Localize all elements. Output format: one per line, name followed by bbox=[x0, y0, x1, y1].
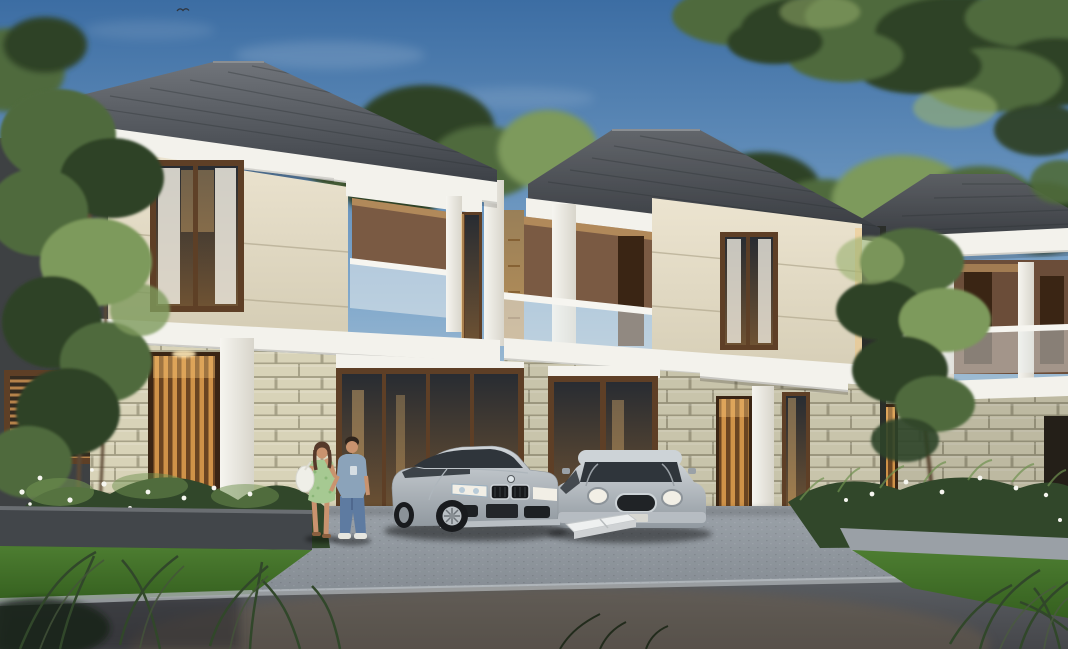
shrub-highlight bbox=[112, 473, 188, 499]
shirt-graphic bbox=[350, 466, 357, 475]
sandal bbox=[312, 532, 321, 536]
side-window-glow bbox=[788, 398, 796, 512]
foliage-highlight bbox=[836, 236, 904, 284]
side-mirror bbox=[688, 468, 696, 474]
foliage-cluster bbox=[871, 418, 939, 462]
head bbox=[317, 448, 328, 459]
side-mirror bbox=[562, 468, 570, 474]
headlight bbox=[533, 487, 557, 501]
headlight bbox=[662, 490, 682, 506]
shoe bbox=[338, 533, 351, 539]
cloud bbox=[85, 20, 215, 40]
headlight-ring bbox=[459, 487, 465, 493]
hub-cap bbox=[449, 513, 455, 519]
porch-column bbox=[752, 386, 774, 520]
warm-ceiling-light bbox=[958, 264, 1018, 272]
door-glow bbox=[153, 356, 215, 378]
canopy-highlight bbox=[913, 88, 997, 128]
foliage-cluster bbox=[110, 284, 170, 336]
fog-light-recess bbox=[524, 506, 550, 518]
shoe bbox=[354, 533, 367, 539]
warm-edge-glow bbox=[461, 214, 464, 344]
window-mullion bbox=[746, 237, 750, 345]
bumper-intake bbox=[486, 504, 518, 518]
sandal bbox=[322, 534, 331, 538]
window-mullion bbox=[193, 166, 198, 306]
door-lamp bbox=[172, 351, 196, 358]
curtain bbox=[215, 168, 236, 304]
headlight-ring bbox=[473, 488, 479, 494]
door-glow bbox=[719, 399, 749, 417]
shrub-highlight bbox=[211, 484, 279, 508]
tree-blob bbox=[3, 17, 87, 73]
architectural-rendering bbox=[0, 0, 1068, 649]
arm bbox=[366, 476, 368, 495]
bmw-badge bbox=[508, 476, 515, 483]
narrow-window-glass bbox=[465, 215, 479, 343]
balcony-column bbox=[446, 196, 462, 332]
shrub-highlight bbox=[26, 478, 94, 506]
grille bbox=[616, 494, 656, 512]
rear-rim bbox=[399, 507, 409, 523]
windshield bbox=[580, 462, 682, 482]
t-shirt bbox=[336, 454, 368, 498]
head bbox=[346, 441, 358, 453]
curtain bbox=[758, 239, 771, 343]
curtain bbox=[727, 239, 741, 343]
headlight bbox=[588, 488, 608, 504]
rendering-canvas bbox=[0, 0, 1068, 649]
